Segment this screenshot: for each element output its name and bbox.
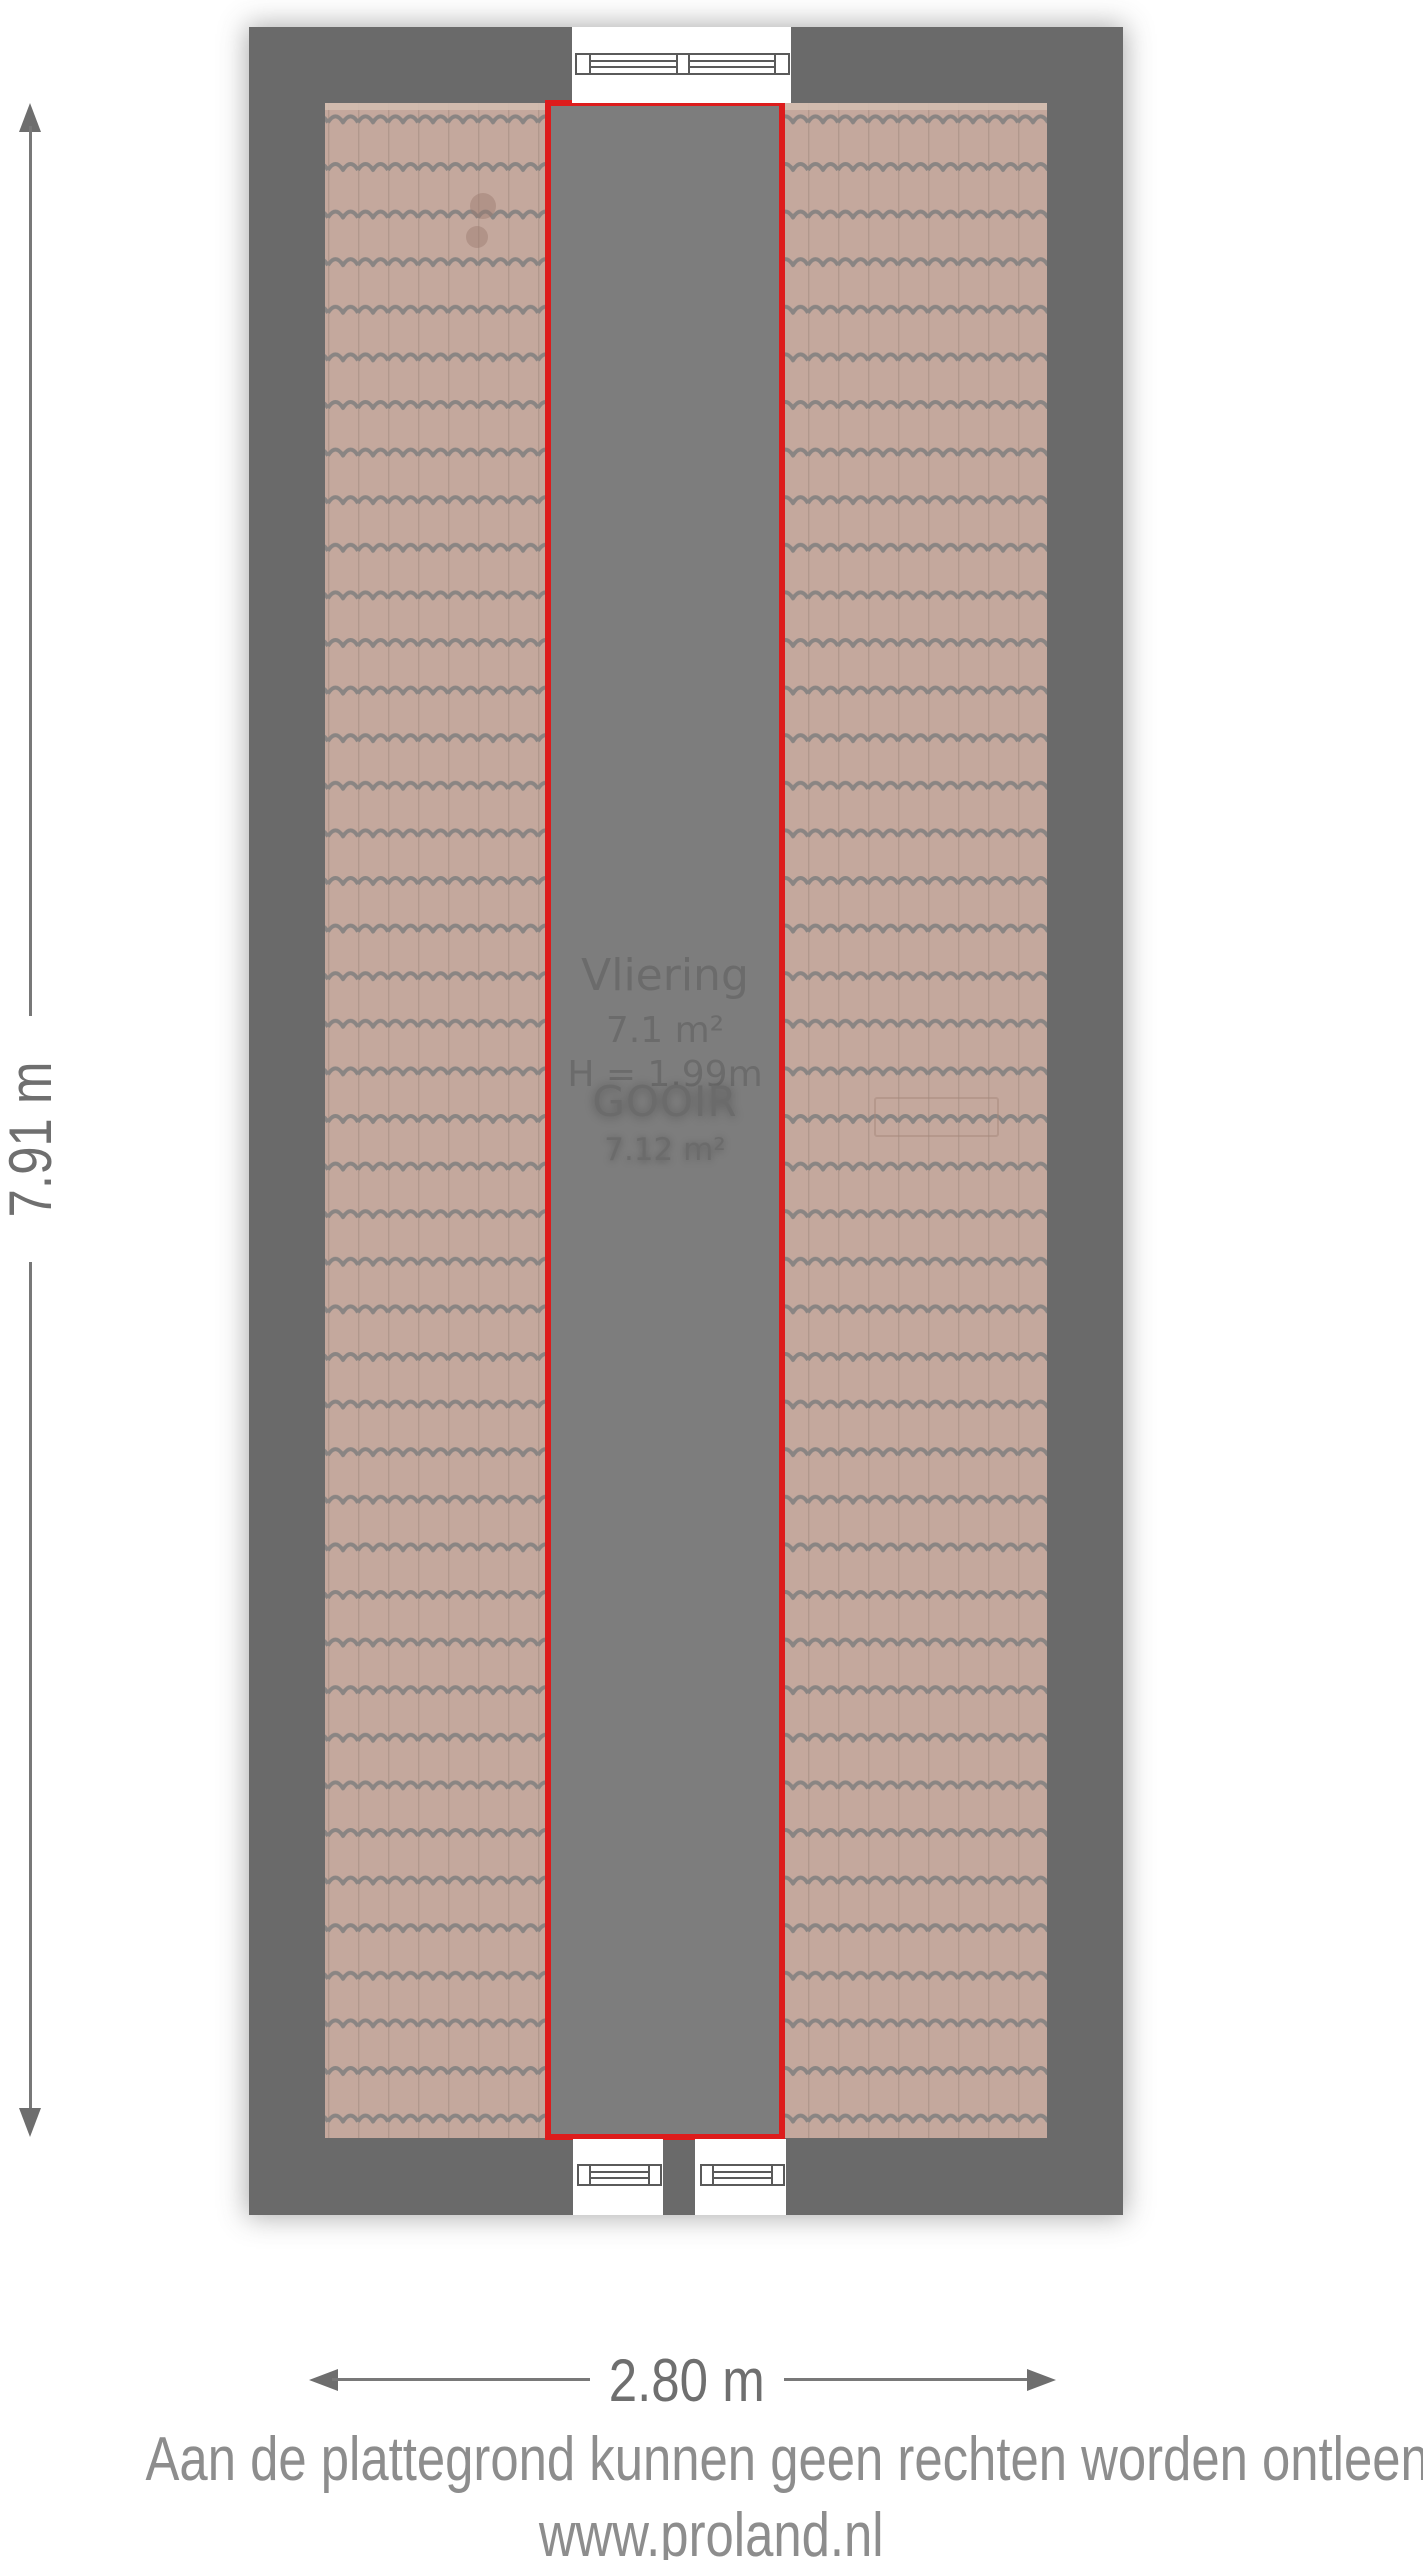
- dimension-height-label: 7.91 m: [0, 1016, 62, 1262]
- window-bottom-left-glyph: [577, 2164, 662, 2186]
- window-bottom-right-glyph: [700, 2164, 785, 2186]
- arrow-down-icon: [19, 2108, 41, 2137]
- arrow-right-icon: [1027, 2369, 1056, 2391]
- website-text: www.proland.nl: [0, 2506, 1423, 2560]
- disclaimer-text: Aan de plattegrond kunnen geen rechten w…: [0, 2430, 1423, 2506]
- window-top-glyph: [575, 53, 790, 75]
- footer: Aan de plattegrond kunnen geen rechten w…: [0, 2430, 1423, 2560]
- building-outline: Vliering 7.1 m² H = 1.99m GOOIR 7.12 m²: [249, 27, 1123, 2215]
- dimension-width-label: 2.80 m: [590, 2349, 784, 2411]
- roof-knot-spot: [466, 226, 488, 248]
- room-vliering[interactable]: [545, 100, 785, 2140]
- roof-knot-spot: [470, 193, 496, 219]
- floorplan-canvas: 7.91 m Vliering 7.1 m² H = 1.99m: [0, 0, 1423, 2560]
